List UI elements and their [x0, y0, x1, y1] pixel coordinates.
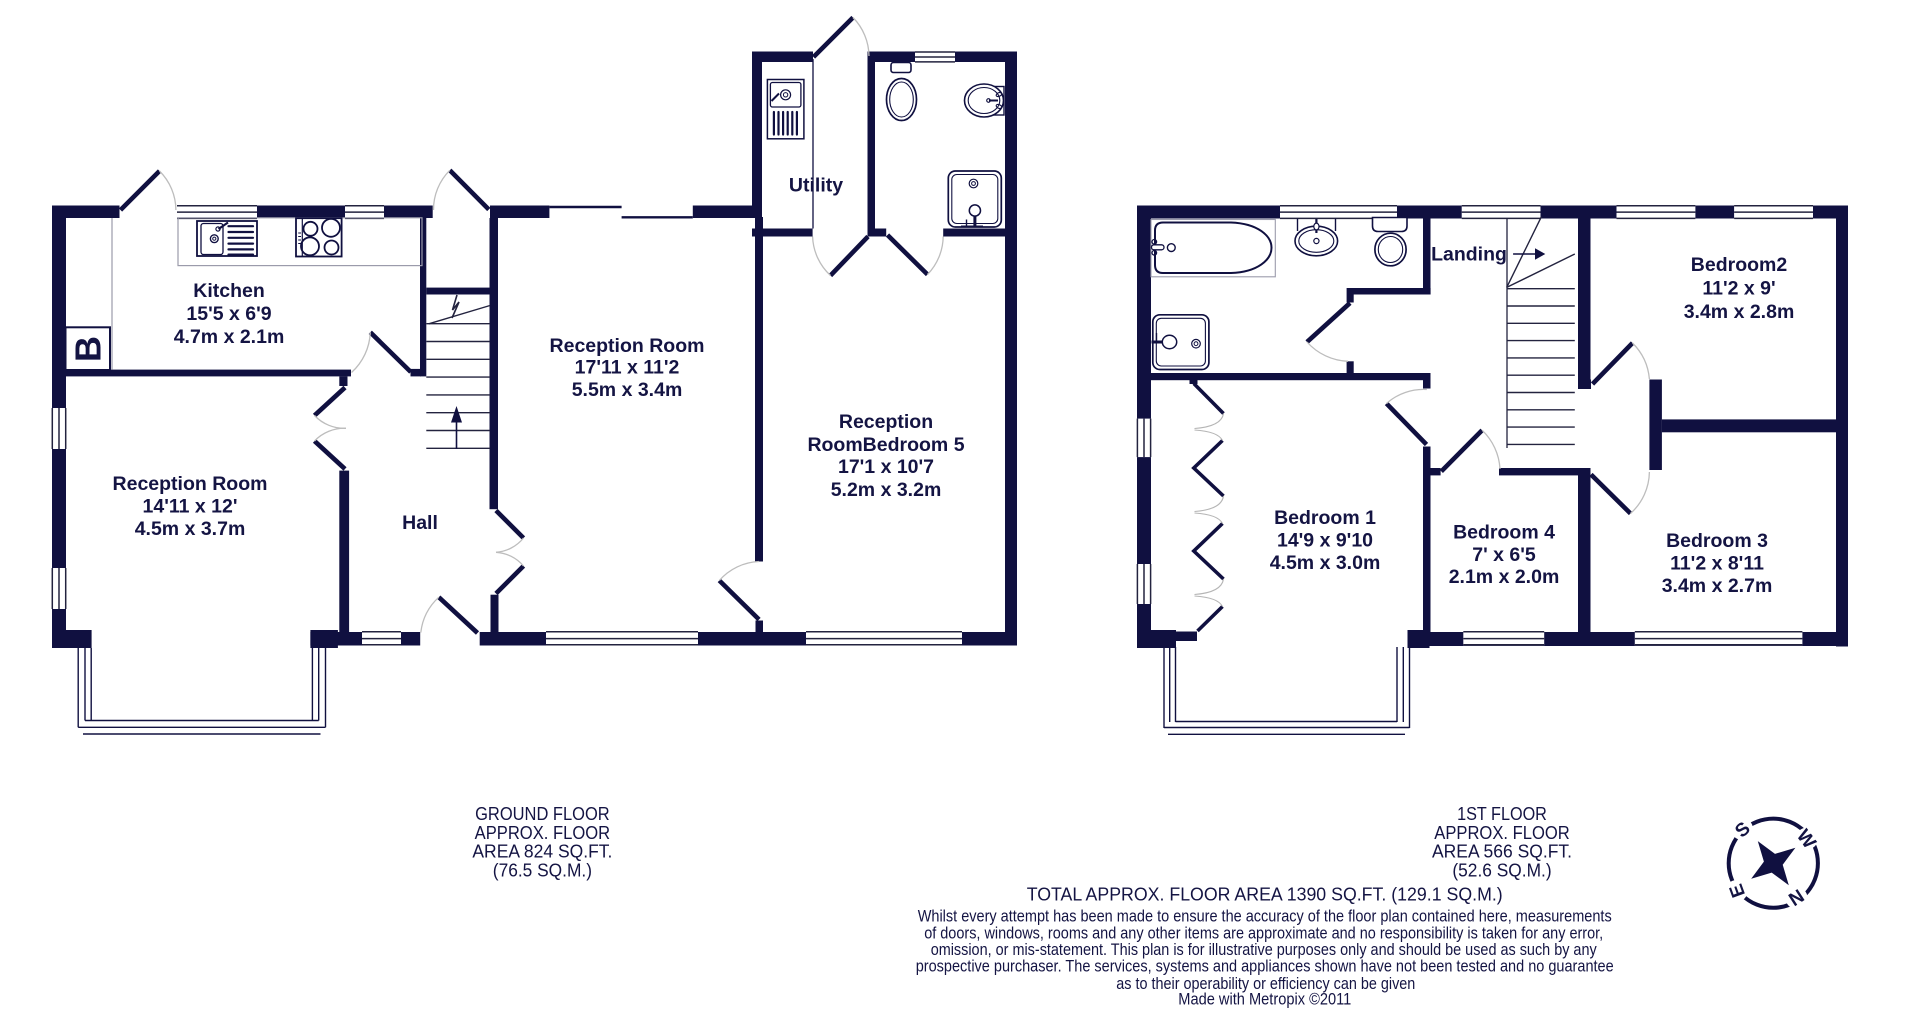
svg-text:RoomBedroom 5: RoomBedroom 5 — [807, 434, 964, 456]
svg-text:prospective purchaser. The ser: prospective purchaser. The services, sys… — [916, 956, 1614, 975]
svg-text:14'9 x 9'10: 14'9 x 9'10 — [1277, 530, 1373, 552]
svg-text:5.5m x 3.4m: 5.5m x 3.4m — [572, 379, 683, 401]
svg-text:(52.6 SQ.M.): (52.6 SQ.M.) — [1452, 859, 1551, 880]
svg-text:(76.5 SQ.M.): (76.5 SQ.M.) — [493, 859, 592, 880]
svg-text:Reception Room: Reception Room — [550, 335, 705, 357]
svg-text:Reception Room: Reception Room — [113, 473, 268, 495]
svg-text:7' x 6'5: 7' x 6'5 — [1472, 544, 1536, 566]
svg-text:3.4m x 2.7m: 3.4m x 2.7m — [1662, 575, 1773, 597]
svg-text:15'5 x 6'9: 15'5 x 6'9 — [186, 303, 271, 325]
svg-text:2.1m x 2.0m: 2.1m x 2.0m — [1449, 566, 1560, 588]
svg-text:11'2 x 9': 11'2 x 9' — [1702, 278, 1775, 300]
svg-text:Landing: Landing — [1431, 244, 1507, 266]
svg-text:4.5m x 3.7m: 4.5m x 3.7m — [135, 518, 246, 540]
svg-text:17'11 x 11'2: 17'11 x 11'2 — [575, 357, 680, 379]
svg-text:Bedroom 4: Bedroom 4 — [1453, 522, 1555, 544]
svg-text:17'1 x 10'7: 17'1 x 10'7 — [838, 456, 934, 478]
svg-text:4.7m x 2.1m: 4.7m x 2.1m — [174, 326, 285, 348]
svg-text:3.4m x 2.8m: 3.4m x 2.8m — [1684, 301, 1795, 323]
svg-text:5.2m x 3.2m: 5.2m x 3.2m — [831, 479, 942, 501]
svg-text:Bedroom 1: Bedroom 1 — [1274, 507, 1376, 529]
svg-text:Made with Metropix ©2011: Made with Metropix ©2011 — [1178, 989, 1351, 1008]
svg-text:Bedroom 3: Bedroom 3 — [1666, 530, 1768, 552]
svg-text:Bedroom2: Bedroom2 — [1691, 254, 1788, 276]
svg-text:Hall: Hall — [402, 512, 438, 534]
svg-text:4.5m x 3.0m: 4.5m x 3.0m — [1270, 552, 1381, 574]
svg-text:Reception: Reception — [839, 411, 933, 433]
svg-text:B: B — [68, 336, 109, 362]
svg-text:11'2 x 8'11: 11'2 x 8'11 — [1670, 553, 1764, 575]
svg-text:14'11 x 12': 14'11 x 12' — [143, 496, 238, 518]
svg-text:Kitchen: Kitchen — [193, 280, 265, 302]
svg-text:TOTAL APPROX. FLOOR AREA 1390: TOTAL APPROX. FLOOR AREA 1390 SQ.FT. (12… — [1027, 883, 1503, 904]
svg-text:Utility: Utility — [789, 175, 843, 197]
